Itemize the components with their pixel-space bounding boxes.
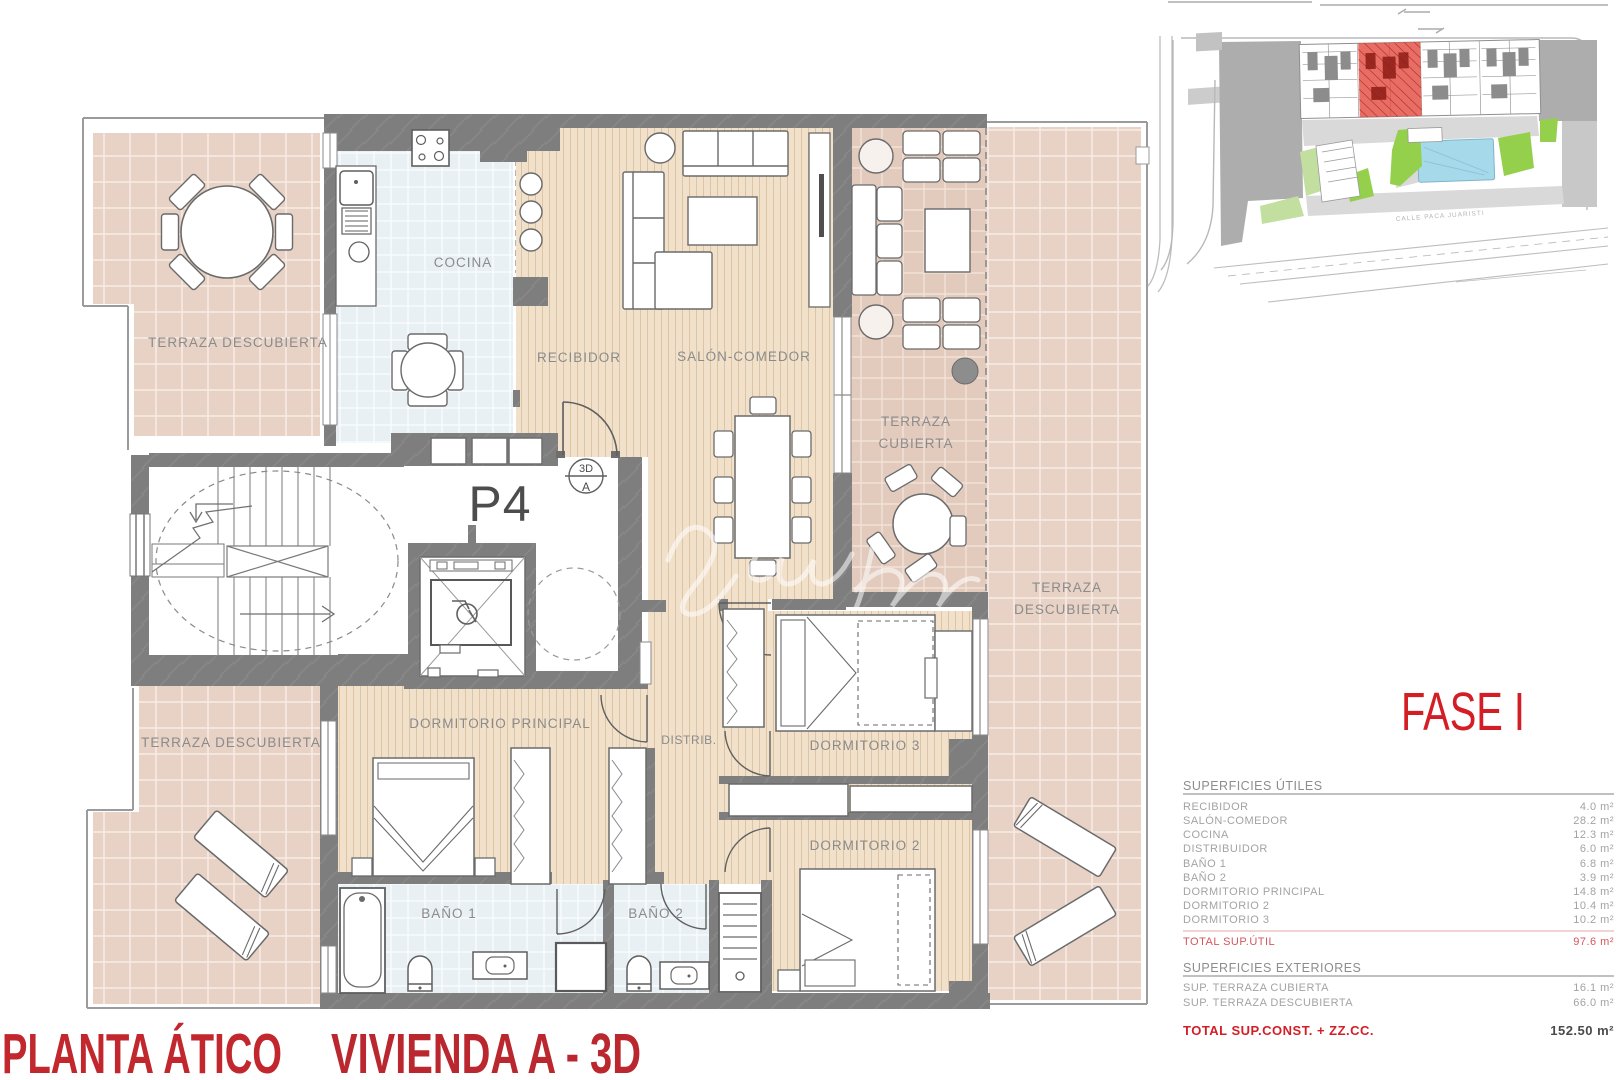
svg-text:BAÑO 2: BAÑO 2: [1183, 871, 1226, 884]
svg-text:SALÓN-COMEDOR: SALÓN-COMEDOR: [1183, 814, 1288, 827]
svg-text:66.0 m²: 66.0 m²: [1573, 997, 1614, 1009]
svg-text:TERRAZA: TERRAZA: [881, 414, 951, 429]
svg-text:DORMITORIO 3: DORMITORIO 3: [1183, 914, 1269, 926]
svg-text:4.0 m²: 4.0 m²: [1580, 801, 1614, 813]
svg-text:TOTAL SUP.CONST. + ZZ.CC.: TOTAL SUP.CONST. + ZZ.CC.: [1183, 1023, 1374, 1038]
svg-text:DESCUBIERTA: DESCUBIERTA: [1014, 602, 1120, 617]
svg-text:152.50 m²: 152.50 m²: [1550, 1023, 1614, 1038]
svg-text:16.1 m²: 16.1 m²: [1573, 982, 1614, 994]
svg-text:RECIBIDOR: RECIBIDOR: [537, 350, 621, 365]
svg-text:DORMITORIO 2: DORMITORIO 2: [810, 838, 921, 853]
svg-text:SALÓN-COMEDOR: SALÓN-COMEDOR: [677, 349, 811, 364]
svg-text:DORMITORIO PRINCIPAL: DORMITORIO PRINCIPAL: [409, 716, 591, 731]
svg-text:3.9 m²: 3.9 m²: [1580, 872, 1614, 884]
svg-text:TERRAZA DESCUBIERTA: TERRAZA DESCUBIERTA: [148, 335, 328, 350]
svg-text:TOTAL SUP.ÚTIL: TOTAL SUP.ÚTIL: [1183, 935, 1275, 948]
svg-text:SUP. TERRAZA DESCUBIERTA: SUP. TERRAZA DESCUBIERTA: [1183, 997, 1353, 1009]
svg-text:6.8 m²: 6.8 m²: [1580, 858, 1614, 870]
svg-text:DORMITORIO 2: DORMITORIO 2: [1183, 900, 1269, 912]
svg-text:28.2 m²: 28.2 m²: [1573, 815, 1614, 827]
svg-text:97.6 m²: 97.6 m²: [1573, 936, 1614, 948]
svg-text:6.0 m²: 6.0 m²: [1580, 843, 1614, 855]
svg-text:10.2 m²: 10.2 m²: [1573, 914, 1614, 926]
svg-text:PLANTA ÁTICO: PLANTA ÁTICO: [2, 1022, 282, 1080]
svg-text:A: A: [582, 480, 590, 494]
svg-text:FASE I: FASE I: [1401, 682, 1525, 742]
svg-text:VIVIENDA A - 3D: VIVIENDA A - 3D: [331, 1022, 641, 1080]
svg-text:BAÑO 1: BAÑO 1: [421, 906, 477, 921]
svg-text:BAÑO 1: BAÑO 1: [1183, 857, 1226, 870]
svg-text:TERRAZA DESCUBIERTA: TERRAZA DESCUBIERTA: [141, 735, 321, 750]
svg-text:SUPERFICIES ÚTILES: SUPERFICIES ÚTILES: [1183, 778, 1323, 793]
svg-text:DISTRIB.: DISTRIB.: [661, 733, 716, 747]
svg-text:10.4 m²: 10.4 m²: [1573, 900, 1614, 912]
svg-text:P4: P4: [468, 476, 531, 532]
svg-text:SUPERFICIES EXTERIORES: SUPERFICIES EXTERIORES: [1183, 961, 1361, 975]
svg-text:CUBIERTA: CUBIERTA: [878, 436, 953, 451]
svg-text:SUP. TERRAZA CUBIERTA: SUP. TERRAZA CUBIERTA: [1183, 982, 1329, 994]
svg-text:12.3 m²: 12.3 m²: [1573, 829, 1614, 841]
svg-text:DORMITORIO 3: DORMITORIO 3: [810, 738, 921, 753]
svg-text:TERRAZA: TERRAZA: [1032, 580, 1102, 595]
svg-text:BAÑO 2: BAÑO 2: [628, 906, 684, 921]
svg-text:COCINA: COCINA: [1183, 829, 1229, 841]
svg-text:COCINA: COCINA: [434, 255, 493, 270]
svg-text:DORMITORIO PRINCIPAL: DORMITORIO PRINCIPAL: [1183, 886, 1325, 898]
svg-text:RECIBIDOR: RECIBIDOR: [1183, 801, 1249, 813]
svg-text:14.8 m²: 14.8 m²: [1573, 886, 1614, 898]
svg-text:3D: 3D: [579, 463, 593, 475]
svg-text:DISTRIBUIDOR: DISTRIBUIDOR: [1183, 843, 1268, 855]
